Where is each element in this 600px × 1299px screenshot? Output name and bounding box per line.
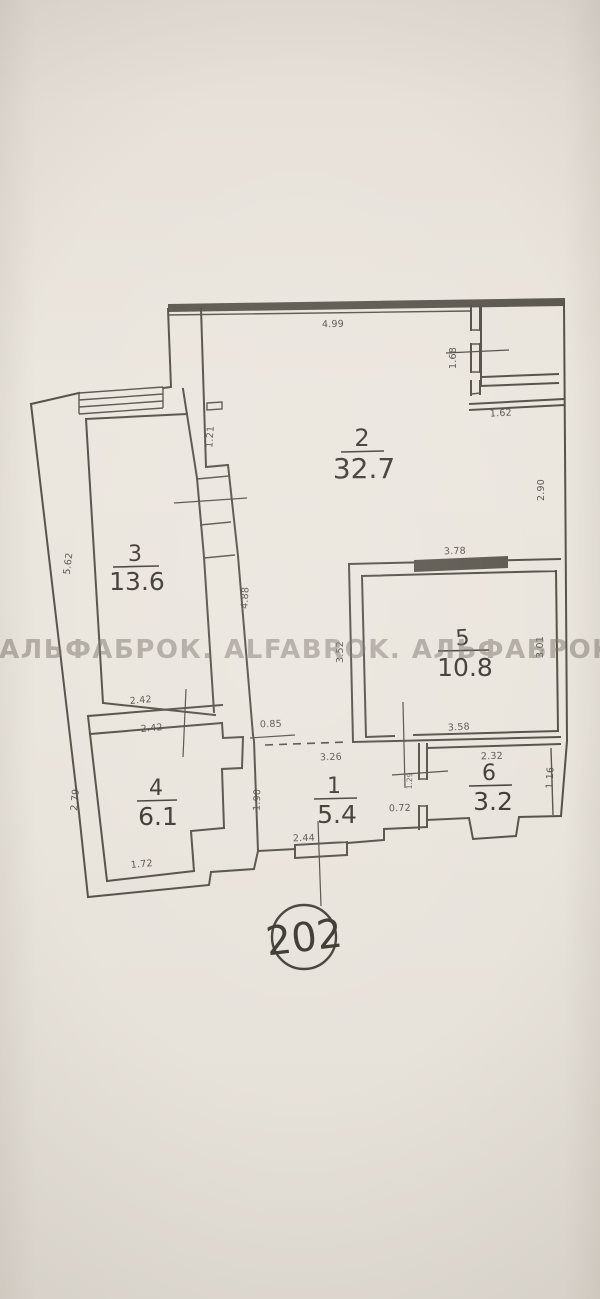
dim-room4-left: 2.79 bbox=[69, 788, 82, 811]
dim-hall-bottom: 2.44 bbox=[293, 833, 315, 845]
hall-step-tick bbox=[250, 735, 295, 738]
room6-area: 3.2 bbox=[473, 787, 513, 816]
dim-niche-height: 1.68 bbox=[448, 347, 459, 369]
room3-inner-walls bbox=[86, 414, 215, 715]
dim-hall-step: 0.85 bbox=[260, 719, 282, 731]
niche-bottom-wall bbox=[470, 399, 564, 410]
top-wall-band bbox=[168, 298, 565, 312]
room-label-4: 4 6.1 bbox=[137, 776, 178, 831]
room4-door-tick bbox=[183, 689, 186, 757]
room6-top-wall bbox=[427, 744, 560, 748]
dim-room4-top: 2.42 bbox=[140, 722, 163, 735]
room2-wall-stub bbox=[207, 402, 222, 410]
dim-corridor-top: 1.21 bbox=[204, 425, 217, 448]
room6-fraction-line bbox=[469, 785, 512, 786]
room4-right-wall bbox=[222, 723, 243, 828]
hall-room6-wall bbox=[419, 744, 427, 829]
outer-top-left-wall bbox=[31, 393, 79, 404]
room-label-2: 2 32.7 bbox=[333, 424, 395, 485]
room4-number: 4 bbox=[149, 776, 163, 801]
room3-window-hatch bbox=[79, 387, 163, 414]
dim-room6-door-side: 1.29 bbox=[405, 772, 415, 789]
entrance-door-tick bbox=[318, 821, 321, 906]
agency-watermark: АЛЬФАБРОК. ALFABROK. АЛЬФАБРОК bbox=[0, 635, 600, 665]
entrance-door bbox=[295, 842, 347, 858]
corridor-right-wall bbox=[201, 308, 253, 735]
room-label-1: 1 5.4 bbox=[314, 774, 357, 829]
top-wall-inner-line bbox=[168, 311, 470, 315]
dim-hall-left: 1.90 bbox=[252, 789, 264, 811]
room6-door-jambs bbox=[419, 779, 427, 806]
dim-room4-bottom: 1.72 bbox=[130, 858, 153, 871]
dim-top-width: 4.99 bbox=[322, 319, 344, 330]
dim-hall-top: 3.26 bbox=[320, 752, 342, 764]
dim-right-wall: 2.90 bbox=[536, 479, 547, 501]
dim-room6-door: 0.72 bbox=[389, 803, 411, 815]
dim-room5-bottom: 3.58 bbox=[448, 721, 470, 733]
room5-window-band bbox=[414, 556, 508, 572]
room-labels: 2 32.7 3 13.6 5 10.8 4 6.1 1 5.4 6 3.2 bbox=[109, 424, 513, 831]
niche-wall-segments bbox=[471, 306, 480, 395]
room5-bottom-outer bbox=[353, 737, 560, 742]
hall-dashed-boundary bbox=[265, 742, 347, 745]
room3-number: 3 bbox=[128, 542, 142, 567]
room2-area: 32.7 bbox=[333, 452, 395, 485]
corridor-dim-tick bbox=[174, 498, 247, 503]
room4-fraction-line bbox=[137, 800, 177, 801]
room6-number: 6 bbox=[482, 761, 496, 786]
room1-area: 5.4 bbox=[317, 800, 357, 829]
room1-number: 1 bbox=[327, 774, 341, 799]
room3-area: 13.6 bbox=[109, 567, 165, 596]
dim-room3-left: 5.62 bbox=[62, 552, 76, 575]
apartment-number-badge: 202 bbox=[263, 905, 344, 969]
room6-bottom-wall bbox=[427, 816, 561, 839]
floor-plan-drawing: 4.99 1.68 1.62 2.90 3.78 3.52 3.01 3.58 … bbox=[0, 0, 600, 1299]
room4-area: 6.1 bbox=[138, 802, 178, 831]
dim-room6-right: 1.16 bbox=[544, 767, 556, 789]
dim-niche-width: 1.62 bbox=[490, 407, 512, 419]
hall-bottom-right-wall bbox=[347, 827, 427, 843]
dim-room5-top: 3.78 bbox=[444, 546, 466, 558]
right-outer-wall bbox=[561, 302, 567, 816]
room2-number: 2 bbox=[354, 424, 369, 452]
dim-corridor-length: 4.88 bbox=[239, 587, 251, 609]
room2-left-wall bbox=[163, 309, 171, 388]
room-label-3: 3 13.6 bbox=[109, 542, 165, 596]
apartment-number-text: 202 bbox=[263, 911, 344, 966]
room1-fraction-line bbox=[314, 798, 357, 799]
dim-room3-bottom: 2.42 bbox=[129, 694, 152, 707]
room-label-6: 6 3.2 bbox=[469, 761, 513, 816]
balcony-box bbox=[481, 308, 558, 386]
